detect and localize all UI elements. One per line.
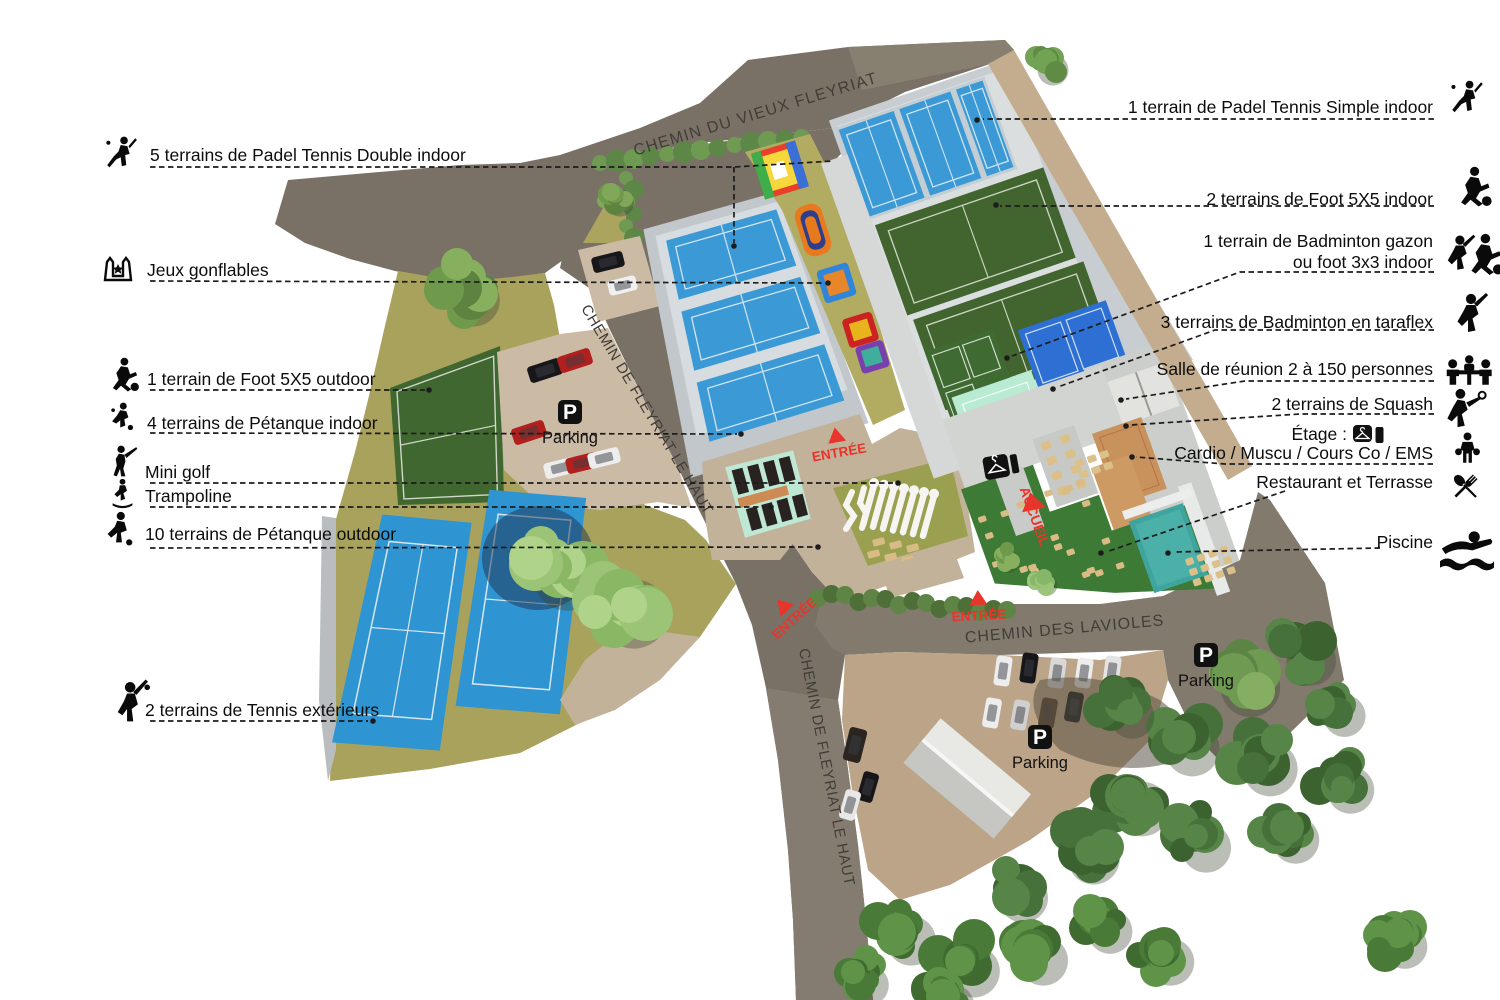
- svg-text:ou foot 3x3 indoor: ou foot 3x3 indoor: [1293, 252, 1433, 272]
- svg-text:Restaurant et Terrasse: Restaurant et Terrasse: [1256, 472, 1433, 492]
- svg-text:Jeux gonflables: Jeux gonflables: [147, 260, 269, 280]
- svg-text:P: P: [1033, 726, 1047, 749]
- svg-text:Parking: Parking: [1178, 672, 1234, 690]
- svg-text:P: P: [563, 401, 577, 424]
- svg-text:ENTRÉE: ENTRÉE: [951, 607, 1006, 625]
- svg-text:10 terrains de Pétanque outdoo: 10 terrains de Pétanque outdoor: [145, 524, 396, 544]
- svg-text:Étage :: Étage :: [1292, 424, 1347, 444]
- svg-text:1 terrain de Badminton gazon: 1 terrain de Badminton gazon: [1203, 231, 1433, 251]
- svg-text:2 terrains de Foot 5X5 indoor: 2 terrains de Foot 5X5 indoor: [1206, 189, 1433, 209]
- svg-text:3 terrains de Badminton en tar: 3 terrains de Badminton en taraflex: [1161, 312, 1434, 332]
- svg-text:4 terrains de Pétanque indoor: 4 terrains de Pétanque indoor: [147, 413, 378, 433]
- svg-text:2 terrains de Squash: 2 terrains de Squash: [1272, 394, 1434, 414]
- svg-text:P: P: [1199, 644, 1213, 667]
- svg-text:Trampoline: Trampoline: [145, 486, 232, 506]
- svg-text:Parking: Parking: [1012, 754, 1068, 772]
- svg-text:Parking: Parking: [542, 429, 598, 447]
- svg-text:Salle de réunion 2 à 150 perso: Salle de réunion 2 à 150 personnes: [1157, 359, 1434, 379]
- svg-text:Piscine: Piscine: [1377, 532, 1433, 552]
- svg-text:5 terrains de Padel Tennis Dou: 5 terrains de Padel Tennis Double indoor: [150, 145, 466, 165]
- svg-text:Mini golf: Mini golf: [145, 462, 210, 482]
- svg-text:1 terrain de Foot 5X5 outdoor: 1 terrain de Foot 5X5 outdoor: [147, 369, 376, 389]
- svg-text:2 terrains de Tennis extérieur: 2 terrains de Tennis extérieurs: [145, 700, 379, 720]
- svg-text:1 terrain de Padel Tennis Simp: 1 terrain de Padel Tennis Simple indoor: [1128, 97, 1433, 117]
- svg-text:Cardio / Muscu / Cours Co / EM: Cardio / Muscu / Cours Co / EMS: [1174, 443, 1433, 463]
